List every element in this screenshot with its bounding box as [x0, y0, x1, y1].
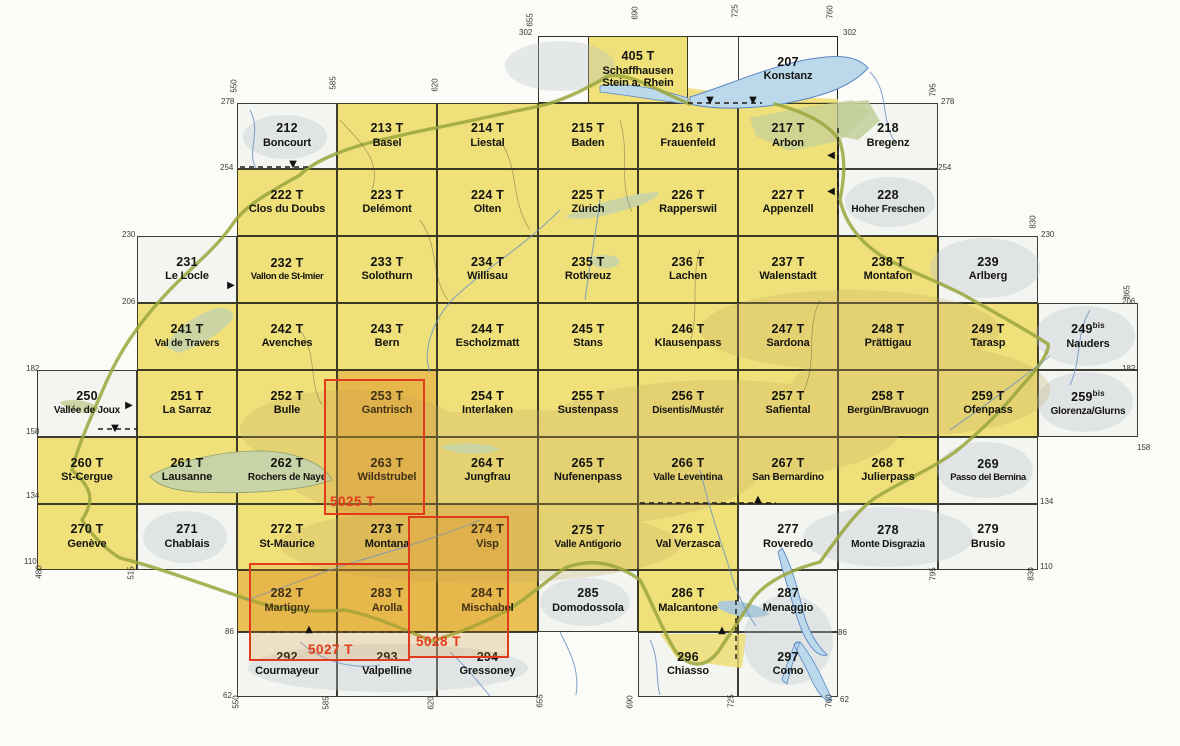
edge-coordinate-label: 760 [825, 694, 834, 707]
edge-coordinate-label: 795 [929, 567, 938, 580]
edge-coordinate-label: 302 [843, 28, 856, 37]
arrow-marker-down: ▼ [289, 160, 297, 170]
edge-coordinate-label: 62 [840, 695, 849, 704]
arrow-marker-left: ◀ [827, 151, 835, 161]
arrow-marker-up: ▲ [754, 495, 762, 505]
edge-coordinate-label: 254 [220, 163, 233, 172]
edge-coordinate-label: 86 [225, 627, 234, 636]
edge-coordinate-label: 550 [232, 695, 241, 708]
edge-coordinate-label: 278 [221, 97, 234, 106]
edge-coordinate-label: 585 [322, 696, 331, 709]
edge-coordinate-label: 158 [1137, 443, 1150, 452]
arrow-marker-right: ▶ [227, 281, 235, 291]
arrow-marker-left: ◀ [827, 187, 835, 197]
edge-coordinate-label: 230 [1041, 230, 1054, 239]
edge-coordinate-label: 110 [1040, 562, 1053, 571]
edge-coordinate-label: 182 [26, 364, 39, 373]
edge-coordinate-label: 550 [230, 79, 239, 92]
edge-coordinate-label: 690 [626, 695, 635, 708]
arrow-marker-right: ▶ [125, 401, 133, 411]
map-index: 405 TSchaffhausen Stein a. Rhein207Konst… [0, 0, 1180, 746]
edge-coordinate-label: 254 [938, 163, 951, 172]
arrow-marker-up: ▲ [305, 625, 313, 635]
edge-coordinate-label: 690 [631, 6, 640, 19]
edge-coordinate-label: 134 [26, 491, 39, 500]
edge-coordinate-label: 795 [929, 83, 938, 96]
edge-coordinate-label: 655 [526, 13, 535, 26]
edge-coordinate-label: 182 [1122, 364, 1135, 373]
edge-coordinate-label: 725 [727, 694, 736, 707]
edge-coordinate-label: 86 [838, 628, 847, 637]
edge-coordinate-label: 830 [1027, 567, 1036, 580]
edge-and-arrow-marks: 3023022782542302061821581341108662278254… [0, 0, 1180, 746]
edge-coordinate-label: 620 [431, 78, 440, 91]
edge-coordinate-label: 206 [122, 297, 135, 306]
edge-coordinate-label: 620 [427, 696, 436, 709]
edge-coordinate-label: 515 [127, 566, 136, 579]
edge-coordinate-label: 230 [122, 230, 135, 239]
edge-coordinate-label: 585 [329, 76, 338, 89]
edge-coordinate-label: 134 [1040, 497, 1053, 506]
edge-coordinate-label: 480 [35, 565, 44, 578]
edge-coordinate-label: 302 [519, 28, 532, 37]
edge-coordinate-label: 158 [26, 427, 39, 436]
arrow-marker-up: ▲ [718, 626, 726, 636]
edge-coordinate-label: 655 [536, 694, 545, 707]
edge-coordinate-label: 830 [1029, 215, 1038, 228]
edge-coordinate-label: 278 [941, 97, 954, 106]
arrow-marker-down: ▼ [706, 96, 714, 106]
edge-coordinate-label: 760 [826, 5, 835, 18]
arrow-marker-down: ▼ [111, 424, 119, 434]
edge-coordinate-label: 725 [731, 4, 740, 17]
arrow-marker-down: ▼ [749, 96, 757, 106]
edge-coordinate-label: 865 [1123, 285, 1132, 298]
